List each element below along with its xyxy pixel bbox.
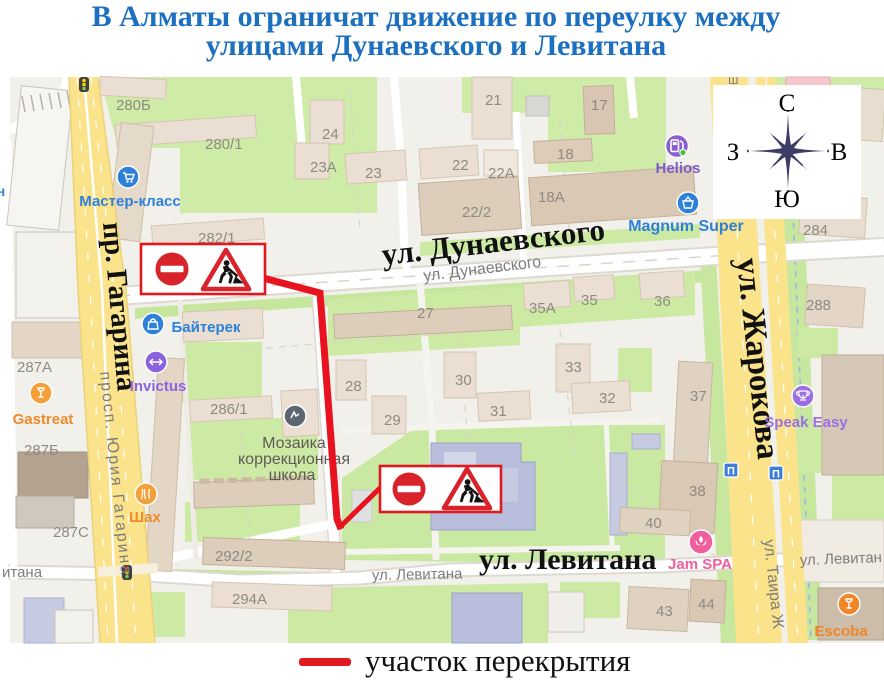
svg-text:24: 24 bbox=[322, 126, 339, 143]
svg-text:Шах: Шах bbox=[129, 509, 161, 526]
svg-text:Speak Easy: Speak Easy bbox=[764, 414, 848, 431]
svg-text:27: 27 bbox=[417, 305, 434, 322]
svg-text:35А: 35А bbox=[529, 300, 556, 317]
svg-text:286/1: 286/1 bbox=[210, 401, 248, 418]
svg-text:18: 18 bbox=[557, 146, 574, 163]
svg-text:33: 33 bbox=[565, 359, 582, 376]
svg-text:292/2: 292/2 bbox=[215, 548, 253, 565]
svg-text:23А: 23А bbox=[310, 159, 337, 176]
svg-text:н: н bbox=[0, 183, 5, 199]
svg-text:улицами Дунаевского и Левитана: улицами Дунаевского и Левитана bbox=[206, 29, 666, 62]
svg-text:287С: 287С bbox=[53, 524, 89, 541]
svg-text:П: П bbox=[772, 469, 780, 481]
svg-text:Gastreat: Gastreat bbox=[13, 411, 74, 428]
svg-text:22: 22 bbox=[452, 157, 469, 174]
svg-text:22А: 22А bbox=[488, 165, 515, 182]
svg-text:Jam SPA: Jam SPA bbox=[668, 556, 732, 573]
svg-text:итана: итана bbox=[2, 564, 43, 581]
svg-text:288: 288 bbox=[806, 297, 831, 314]
svg-text:21: 21 bbox=[485, 92, 502, 109]
svg-text:38: 38 bbox=[689, 483, 706, 500]
svg-text:Мозаика: Мозаика bbox=[262, 435, 326, 452]
svg-text:31: 31 bbox=[490, 403, 507, 420]
svg-text:ш: ш bbox=[728, 72, 738, 87]
svg-text:В: В bbox=[831, 139, 848, 166]
svg-text:287А: 287А bbox=[17, 359, 52, 376]
svg-text:43: 43 bbox=[656, 603, 673, 620]
svg-text:40: 40 bbox=[645, 515, 662, 532]
svg-text:32: 32 bbox=[599, 390, 616, 407]
svg-text:37: 37 bbox=[690, 388, 707, 405]
svg-text:Мастер-класс: Мастер-класс bbox=[79, 193, 180, 210]
svg-text:287Б: 287Б bbox=[24, 442, 59, 459]
svg-text:280Б: 280Б bbox=[116, 97, 151, 114]
svg-text:Invictus: Invictus bbox=[130, 378, 187, 395]
svg-text:Escoba: Escoba bbox=[814, 623, 868, 640]
svg-text:28: 28 bbox=[345, 378, 362, 395]
svg-text:17: 17 bbox=[591, 97, 608, 114]
svg-text:ул. Левитана: ул. Левитана bbox=[372, 565, 463, 584]
svg-text:участок перекрытия: участок перекрытия bbox=[365, 643, 630, 678]
svg-text:22/2: 22/2 bbox=[462, 204, 491, 221]
svg-text:29: 29 bbox=[384, 412, 401, 429]
svg-text:44: 44 bbox=[698, 596, 715, 613]
svg-text:294А: 294А bbox=[232, 591, 267, 608]
svg-text:280/1: 280/1 bbox=[205, 136, 243, 153]
svg-text:23: 23 bbox=[365, 165, 382, 182]
svg-text:18А: 18А bbox=[538, 189, 565, 206]
svg-text:Magnum Super: Magnum Super bbox=[628, 218, 744, 235]
svg-text:284: 284 bbox=[803, 222, 828, 239]
svg-text:35: 35 bbox=[581, 292, 598, 309]
svg-text:Helios: Helios bbox=[655, 160, 700, 177]
svg-text:ул. Левитана: ул. Левитана bbox=[479, 543, 656, 576]
svg-text:36: 36 bbox=[654, 293, 671, 310]
svg-text:школа: школа bbox=[269, 467, 316, 484]
svg-text:30: 30 bbox=[455, 372, 472, 389]
svg-text:С: С bbox=[779, 90, 796, 117]
svg-text:П: П bbox=[727, 466, 735, 478]
svg-text:Ю: Ю bbox=[774, 186, 800, 213]
svg-text:З: З bbox=[727, 139, 740, 166]
svg-text:ул. Левитан: ул. Левитан bbox=[800, 549, 883, 569]
svg-text:Байтерек: Байтерек bbox=[171, 319, 241, 336]
